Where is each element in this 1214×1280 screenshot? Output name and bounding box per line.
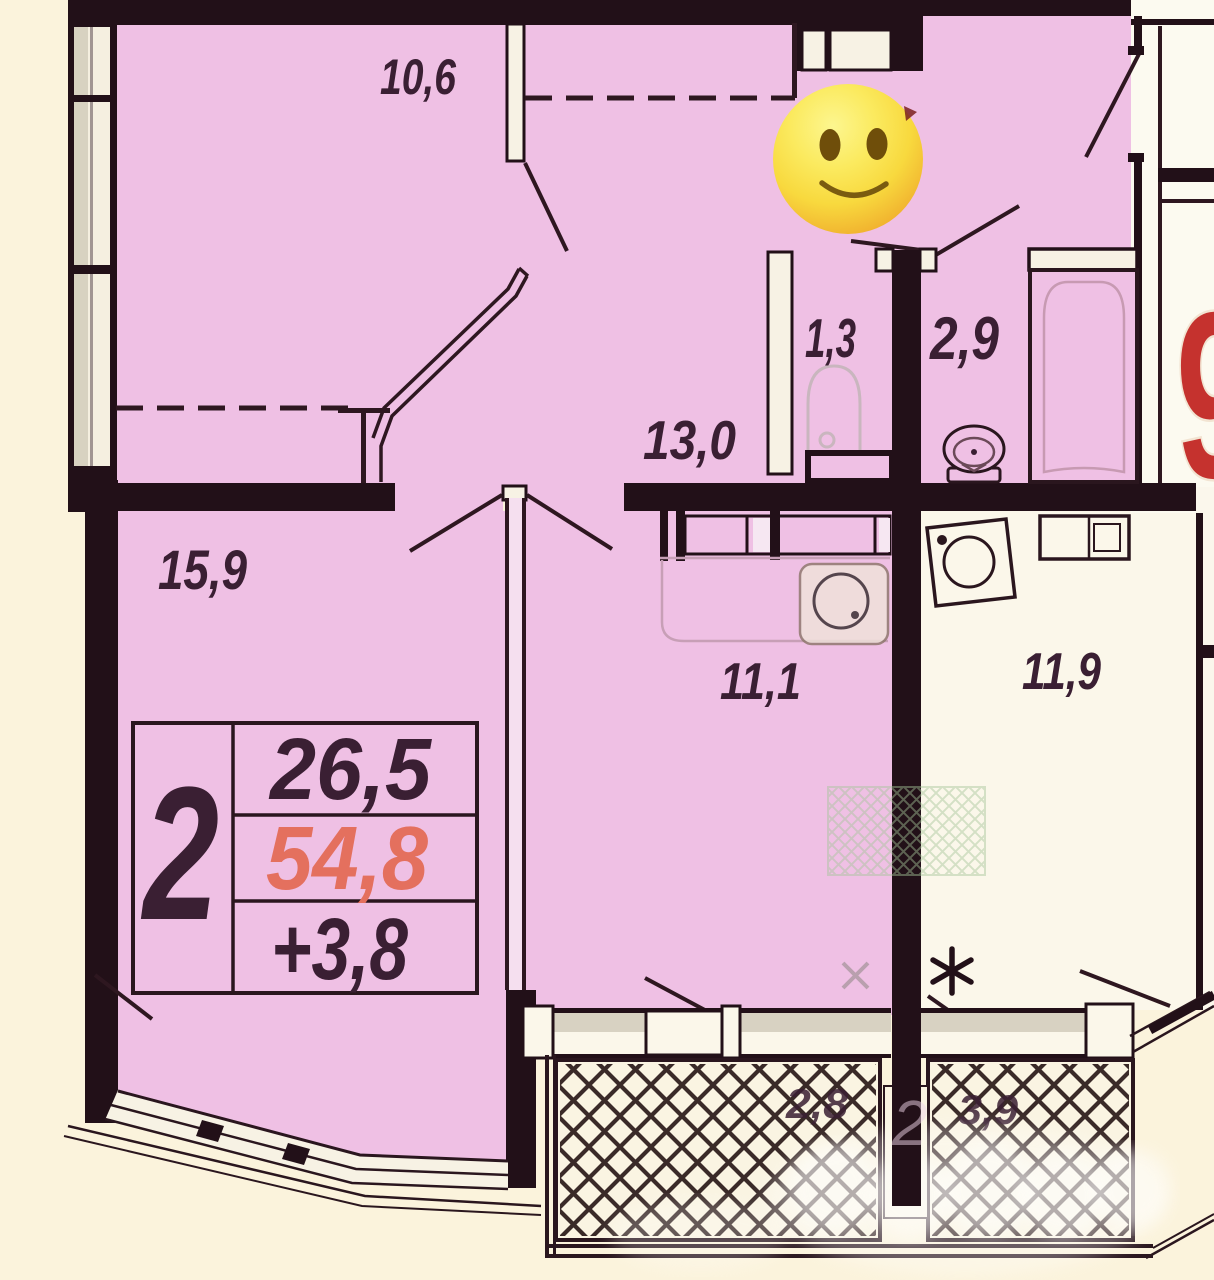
svg-text:2,9: 2,9 [929, 305, 999, 372]
svg-text:15,9: 15,9 [158, 538, 247, 601]
svg-text:+3,8: +3,8 [271, 901, 408, 998]
svg-text:2: 2 [891, 1087, 928, 1159]
svg-text:10,6: 10,6 [380, 49, 457, 105]
svg-text:9: 9 [1175, 262, 1214, 530]
svg-text:2: 2 [141, 748, 219, 960]
svg-text:26,5: 26,5 [268, 721, 432, 818]
svg-text:2,8: 2,8 [785, 1080, 849, 1127]
svg-text:54,8: 54,8 [266, 809, 428, 909]
svg-text:11,9: 11,9 [1022, 643, 1101, 701]
svg-text:1,3: 1,3 [805, 307, 856, 369]
svg-text:13,0: 13,0 [643, 409, 736, 471]
svg-text:11,1: 11,1 [720, 653, 801, 711]
